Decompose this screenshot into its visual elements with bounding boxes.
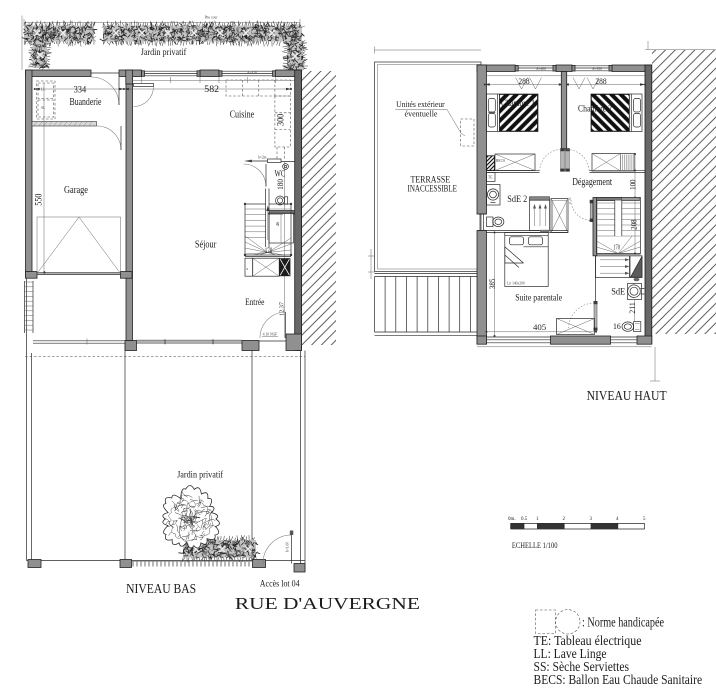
svg-text:Chambre 1: Chambre 1 <box>501 98 535 108</box>
svg-text:Entrée: Entrée <box>245 298 264 308</box>
svg-text:Cuisine: Cuisine <box>230 110 255 121</box>
svg-text:INACCESSIBLE: INACCESSIBLE <box>408 184 458 194</box>
svg-text:170: 170 <box>265 246 273 255</box>
svg-text:A+410: A+410 <box>247 71 257 75</box>
svg-text:ECHELLE 1/100: ECHELLE 1/100 <box>512 540 558 550</box>
svg-text:Buanderie: Buanderie <box>70 97 102 108</box>
svg-text:RUE D'AUVERGNE: RUE D'AUVERGNE <box>235 594 420 613</box>
svg-text:211: 211 <box>627 302 637 313</box>
svg-text:288: 288 <box>518 76 529 86</box>
svg-text:405: 405 <box>533 322 546 332</box>
svg-text:Jardin privatif: Jardin privatif <box>141 47 187 57</box>
svg-text:: Norme handicapée: : Norme handicapée <box>582 616 664 631</box>
svg-text:Suite parentale: Suite parentale <box>515 294 562 304</box>
svg-text:A+400: A+400 <box>536 67 546 71</box>
svg-text:288: 288 <box>595 76 606 86</box>
svg-text:Séjour: Séjour <box>195 240 217 251</box>
svg-text:300: 300 <box>276 113 286 126</box>
svg-text:208: 208 <box>628 220 638 230</box>
svg-text:0m.: 0m. <box>508 517 516 522</box>
svg-text:SL: SL <box>41 106 45 110</box>
svg-text:Unités extérieur: Unités extérieur <box>396 99 445 109</box>
svg-text:WC: WC <box>275 170 286 180</box>
svg-text:SdE: SdE <box>611 288 625 298</box>
svg-text:16: 16 <box>613 321 621 331</box>
svg-text:334: 334 <box>74 85 87 95</box>
svg-text:éventuelle: éventuelle <box>405 109 438 119</box>
svg-text:BECS: Ballon Eau Chaude Sanita: BECS: Ballon Eau Chaude Sanitaire <box>534 673 703 688</box>
svg-text:170: 170 <box>613 244 620 252</box>
svg-text:NIVEAU HAUT: NIVEAU HAUT <box>587 389 667 404</box>
svg-text:Jardin privatif: Jardin privatif <box>177 470 224 481</box>
svg-text:h=1.60: h=1.60 <box>286 542 290 552</box>
svg-text:SdE 2: SdE 2 <box>507 195 527 205</box>
svg-text:100: 100 <box>628 180 638 190</box>
svg-text:Accès lot 04: Accès lot 04 <box>260 580 300 590</box>
svg-text:Lit 140x200: Lit 140x200 <box>507 282 525 286</box>
svg-text:582: 582 <box>204 84 219 94</box>
svg-text:u: u <box>247 267 249 271</box>
svg-text:LL: LL <box>41 88 45 92</box>
svg-text:NIVEAU BAS: NIVEAU BAS <box>126 582 196 597</box>
svg-text:385: 385 <box>487 279 497 289</box>
svg-text:550: 550 <box>34 193 44 206</box>
svg-text:12.37: 12.37 <box>279 301 286 316</box>
svg-text:Dégagement: Dégagement <box>572 177 612 188</box>
svg-text:0.5: 0.5 <box>521 517 528 522</box>
svg-text:Ptte cour: Ptte cour <box>205 16 219 20</box>
svg-text:Garage: Garage <box>64 185 88 196</box>
svg-text:Chambre 2: Chambre 2 <box>578 104 612 114</box>
svg-text:4.10 NGF: 4.10 NGF <box>263 333 277 337</box>
svg-text:180: 180 <box>275 179 285 190</box>
svg-text:46: 46 <box>275 221 280 226</box>
svg-text:A+100: A+100 <box>592 67 602 71</box>
svg-text:h=2m: h=2m <box>258 156 267 160</box>
svg-text:BECS: BECS <box>496 159 505 163</box>
